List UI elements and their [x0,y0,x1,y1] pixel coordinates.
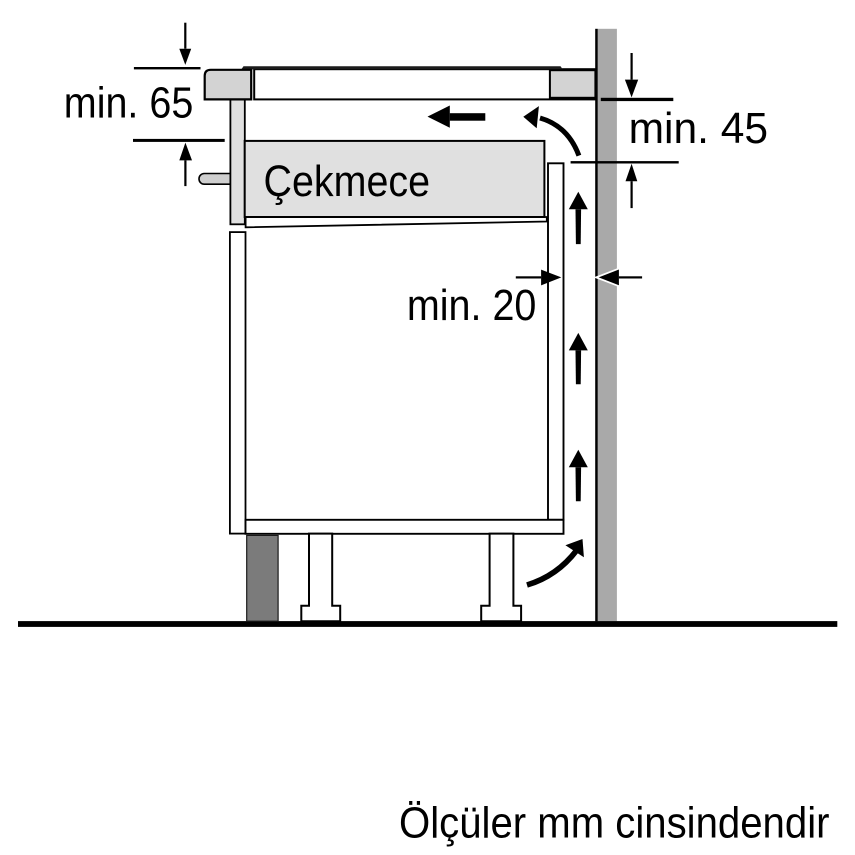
svg-text:min. 65: min. 65 [64,79,194,128]
svg-text:min. 45: min. 45 [629,104,769,153]
svg-text:Ölçüler mm cinsindendir: Ölçüler mm cinsindendir [399,799,830,848]
svg-text:min. 20: min. 20 [407,281,537,330]
svg-text:Çekmece: Çekmece [264,157,431,206]
